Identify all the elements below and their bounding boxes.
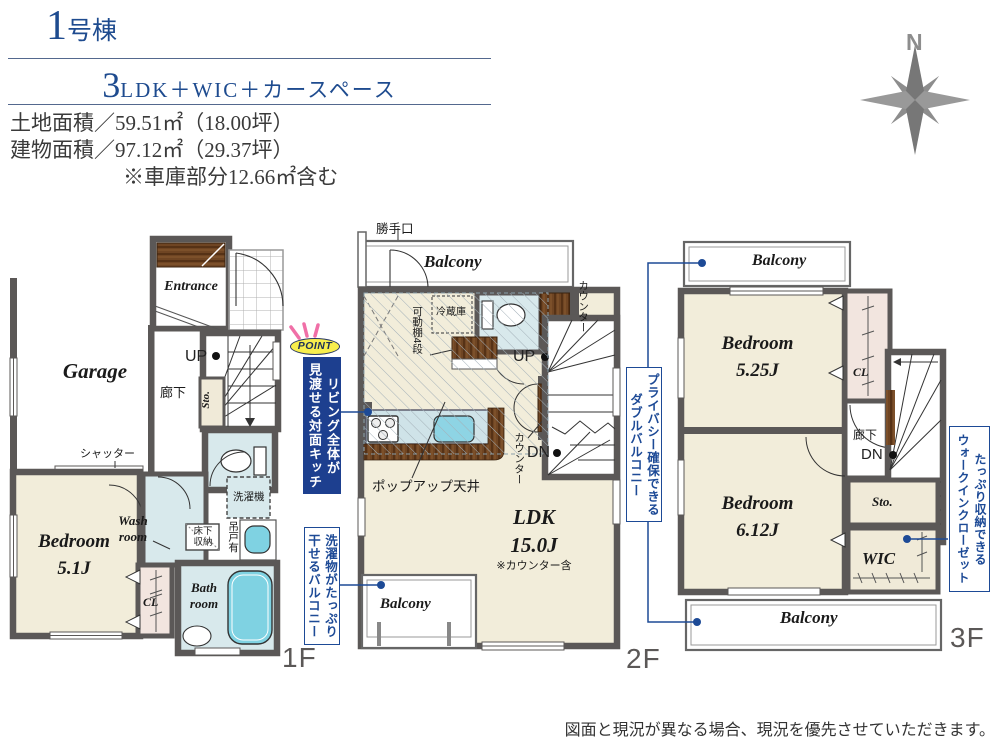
balcony-2f-bottom-label: Balcony bbox=[380, 595, 431, 614]
dn-3f-label: DN bbox=[861, 446, 883, 465]
up-dot-1f bbox=[212, 352, 220, 360]
shoe-cabinet bbox=[157, 243, 225, 267]
floor3-drawing bbox=[678, 242, 943, 650]
plan-number: 3 bbox=[102, 65, 120, 105]
bath-room-label: Bath room bbox=[181, 580, 227, 613]
callout-kitchen: リビング全体が 見渡せる対面キッチン bbox=[303, 357, 341, 494]
compass-icon bbox=[860, 45, 970, 155]
floorplan-sheet: 1号棟 3LDK＋WIC＋カースペース 土地面積／59.51㎡（18.00坪） … bbox=[0, 0, 1000, 750]
bath-drain bbox=[183, 626, 211, 646]
garage-label: Garage bbox=[40, 358, 150, 384]
shutter-label: シャッター bbox=[80, 448, 135, 462]
stair-rail-wood bbox=[886, 390, 895, 445]
building-number: 1 bbox=[46, 3, 67, 49]
hallway-3f-label: 廊下 bbox=[853, 428, 877, 443]
storage-3f-label: Sto. bbox=[872, 494, 893, 510]
storage-1f-label: Sto. bbox=[200, 391, 214, 408]
building-area: 建物面積／97.12㎡（29.37坪） bbox=[10, 137, 338, 164]
garage-note: ※車庫部分12.66㎡含む bbox=[123, 164, 338, 191]
up-2f-label: UP bbox=[513, 347, 535, 367]
divider bbox=[8, 58, 491, 59]
counter-mid-label: カウンター bbox=[512, 432, 525, 485]
dn-dot-3f bbox=[889, 451, 897, 459]
balcony-3f-bottom-label: Balcony bbox=[780, 607, 838, 628]
ldk-label: LDK 15.0J bbox=[492, 503, 576, 559]
divider bbox=[8, 104, 491, 105]
ldk-note-label: ※カウンター含 bbox=[486, 560, 582, 574]
closet-3f-label: CL bbox=[853, 365, 868, 380]
storage-3f bbox=[848, 480, 938, 525]
dn-dot-2f bbox=[553, 449, 561, 457]
plan-text: LDK＋WIC＋カースペース bbox=[120, 78, 396, 102]
floor3-tag: 3F bbox=[950, 620, 985, 655]
bedroom-525-label: Bedroom 5.25J bbox=[695, 330, 820, 384]
washer-label: 洗濯機 bbox=[233, 491, 265, 504]
point-rays-icon bbox=[291, 324, 318, 338]
vanity-sink bbox=[245, 526, 270, 553]
page-title: 1号棟 bbox=[46, 4, 117, 48]
bedroom-612-label: Bedroom 6.12J bbox=[695, 490, 820, 544]
land-area: 土地面積／59.51㎡（18.00坪） bbox=[10, 110, 338, 137]
dn-2f-label: DN bbox=[527, 443, 550, 463]
counter-top-label: カウンター bbox=[576, 280, 589, 333]
wash-room-label: Wash room bbox=[110, 513, 156, 546]
underfloor-storage-label: 床下 収納 bbox=[188, 527, 218, 548]
callout-wic: たっぷり収納できる ウォークインクローゼット bbox=[949, 426, 990, 592]
compass-north-label: N bbox=[906, 28, 923, 57]
point-badge: POINT bbox=[290, 338, 340, 355]
entrance-label: Entrance bbox=[156, 278, 226, 296]
up-1f-label: UP bbox=[185, 347, 207, 367]
back-door-label: 勝手口 bbox=[376, 222, 414, 238]
popup-ceiling-label: ポップアップ天井 bbox=[372, 479, 480, 496]
floor1-drawing bbox=[10, 239, 283, 655]
balcony-3f-top-label: Balcony bbox=[752, 251, 806, 271]
toilet-tank-1f bbox=[254, 447, 266, 475]
plan-type: 3LDK＋WIC＋カースペース bbox=[8, 64, 491, 106]
bathtub bbox=[228, 571, 272, 644]
balcony-2f-top-label: Balcony bbox=[424, 251, 482, 272]
floor2-tag: 2F bbox=[626, 641, 661, 676]
area-info: 土地面積／59.51㎡（18.00坪） 建物面積／97.12㎡（29.37坪） … bbox=[10, 110, 338, 191]
fridge-label: 冷蔵庫 bbox=[436, 307, 466, 320]
callout-privacy: プライバシー確保できる ダブルバルコニー bbox=[626, 367, 662, 522]
porch bbox=[229, 250, 283, 330]
wic-label: WIC bbox=[862, 548, 895, 569]
floor1-tag: 1F bbox=[282, 640, 317, 675]
closet-1f-label: CL bbox=[143, 595, 158, 610]
building-unit: 号棟 bbox=[67, 18, 117, 45]
hallway-1f-label: 廊下 bbox=[160, 385, 186, 401]
callout-laundry: 洗濯物がたっぷり 干せるバルコニー bbox=[304, 527, 340, 645]
hanging-cabinet-label: 吊戸有 bbox=[226, 521, 239, 553]
movable-shelf-label: 可動棚4段 bbox=[410, 306, 423, 354]
disclaimer-text: 図面と現況が異なる場合、現況を優先させていただきます。 bbox=[530, 716, 995, 740]
